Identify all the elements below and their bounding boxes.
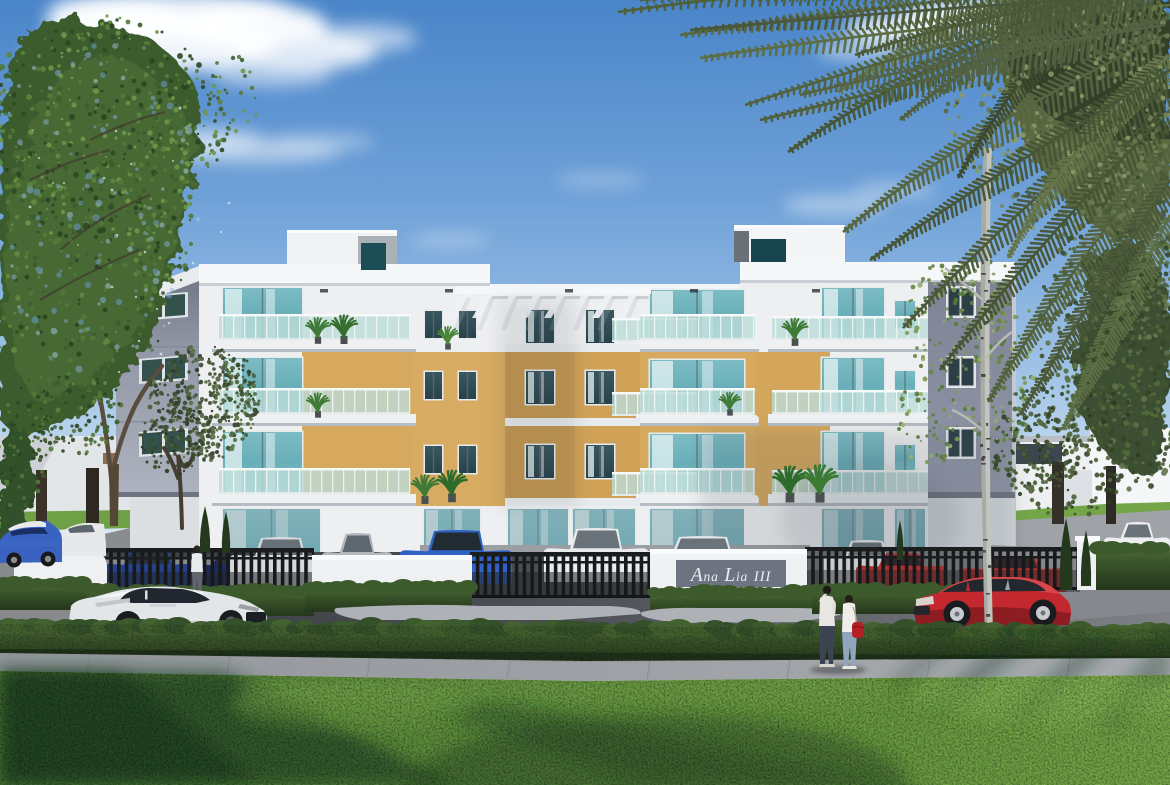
svg-text:Ana Lia III: Ana Lia III (689, 565, 772, 586)
